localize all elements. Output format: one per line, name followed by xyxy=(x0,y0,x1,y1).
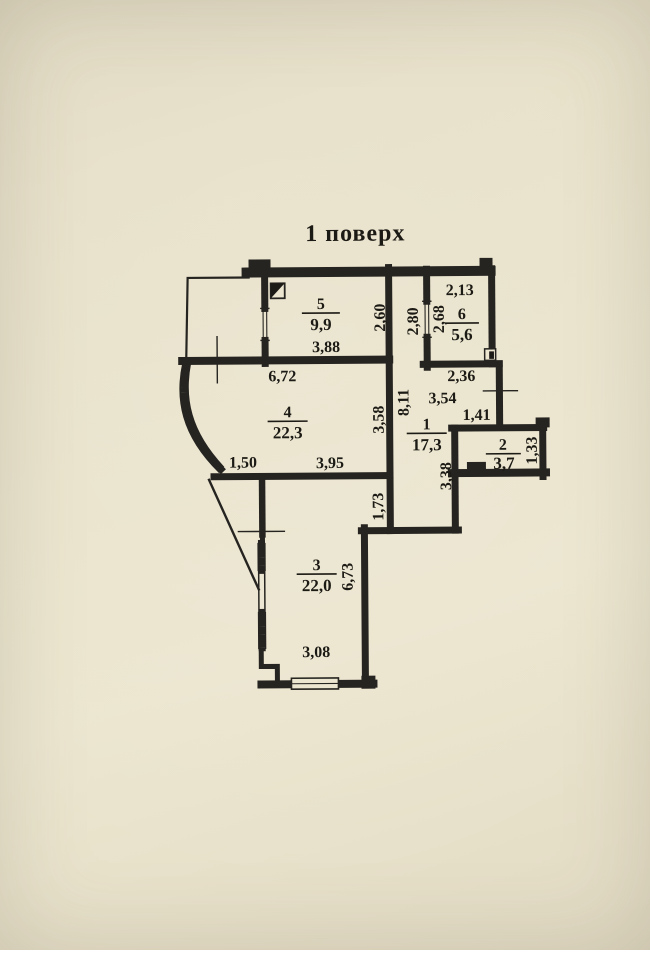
room-area-label: 5,6 xyxy=(451,325,472,344)
wall xyxy=(389,268,391,531)
wall xyxy=(214,476,390,477)
paper-photo: 1 поверх 5 9,9 6 5,6 4 22,3 1 17,3 2 3,7… xyxy=(0,0,650,950)
room-labels: 5 9,9 6 5,6 4 22,3 1 17,3 2 3,7 3 22,0 xyxy=(267,295,522,596)
room-area-label: 3,7 xyxy=(493,454,515,473)
room-area-label: 17,3 xyxy=(412,435,442,454)
dimension-label: 3,95 xyxy=(316,455,344,472)
wall xyxy=(361,530,458,531)
dimension-label: 2,80 xyxy=(405,307,422,335)
room-number-label: 1 xyxy=(423,416,431,433)
dimension-label: 6,73 xyxy=(340,563,357,591)
room-number-label: 5 xyxy=(317,296,325,313)
dimension-label: 3,54 xyxy=(428,390,456,407)
wall xyxy=(452,427,544,428)
door-opening xyxy=(263,308,267,340)
wall xyxy=(247,271,491,273)
room-number-label: 4 xyxy=(284,404,292,421)
room-number-label: 2 xyxy=(499,437,507,454)
dimension-label: 6,72 xyxy=(268,368,296,385)
door-opening xyxy=(261,308,269,340)
room-area-label: 9,9 xyxy=(310,315,331,334)
dimension-label: 2,68 xyxy=(431,305,448,333)
door-opening xyxy=(423,301,431,337)
dimension-label: 2,13 xyxy=(446,282,474,299)
dimension-label: 3,88 xyxy=(312,339,340,356)
dimension-label: 3,38 xyxy=(438,462,455,490)
walls xyxy=(179,257,551,690)
dimension-label: 8,11 xyxy=(395,389,412,416)
dimension-label: 2,60 xyxy=(372,304,389,332)
dimension-label: 3,58 xyxy=(371,406,388,434)
dimension-label: 1,41 xyxy=(463,407,491,424)
wall xyxy=(261,650,277,682)
wall xyxy=(364,528,365,685)
wall xyxy=(209,479,259,589)
wall xyxy=(259,570,265,612)
dimension-label: 1,33 xyxy=(524,436,541,464)
room-number-label: 3 xyxy=(313,557,321,574)
room-area-label: 22,0 xyxy=(302,576,332,595)
door-icon xyxy=(489,351,494,359)
floor-plan: 1 поверх 5 9,9 6 5,6 4 22,3 1 17,3 2 3,7… xyxy=(179,219,551,690)
wall xyxy=(182,360,389,361)
dimension-label: 1,73 xyxy=(370,493,387,521)
dimension-label: 1,50 xyxy=(229,454,257,471)
door-opening xyxy=(425,301,429,337)
wall xyxy=(467,462,486,471)
floor-plan-drawing: 1 поверх 5 9,9 6 5,6 4 22,3 1 17,3 2 3,7… xyxy=(0,0,650,950)
dimension-label: 3,08 xyxy=(302,644,330,661)
room-area-label: 22,3 xyxy=(273,423,303,442)
wall xyxy=(423,364,499,365)
wall xyxy=(361,676,375,689)
dimension-label: 2,36 xyxy=(447,368,475,385)
room-number-label: 6 xyxy=(458,306,466,323)
floor-title: 1 поверх xyxy=(305,220,405,247)
